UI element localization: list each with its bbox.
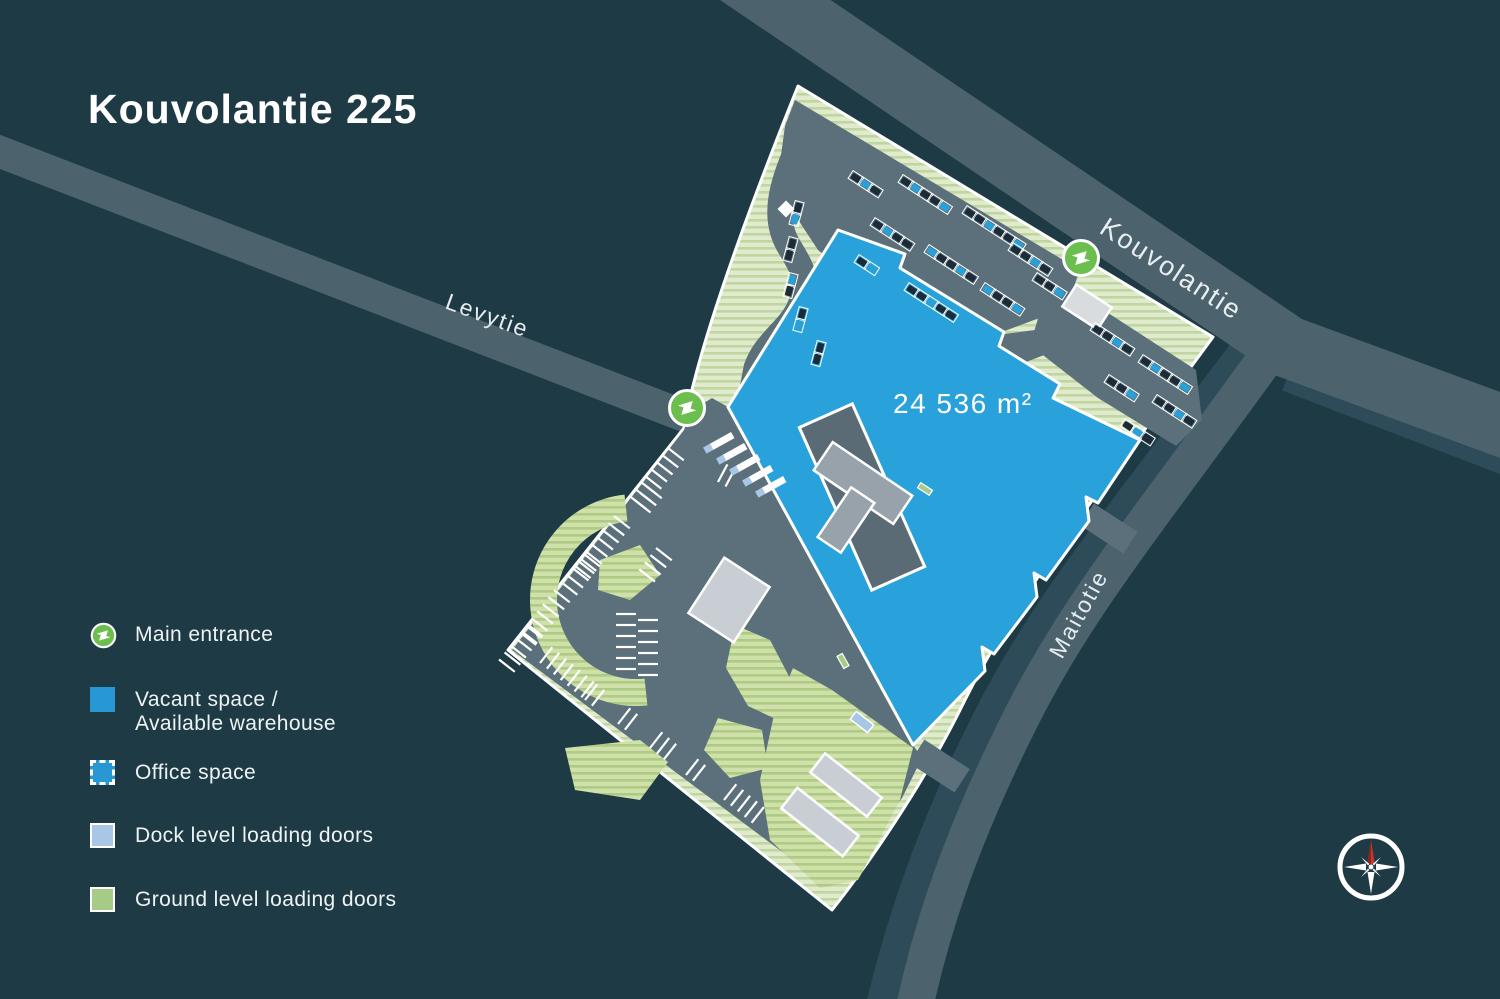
legend-item-office-space: Office space bbox=[90, 760, 396, 785]
main-entrance-icon bbox=[90, 622, 117, 649]
vacant-space-swatch bbox=[90, 687, 115, 712]
dock-doors-swatch bbox=[90, 823, 115, 848]
legend-label: Main entrance bbox=[135, 622, 273, 647]
legend-label: Dock level loading doors bbox=[135, 823, 373, 848]
legend-item-dock-doors: Dock level loading doors bbox=[90, 823, 396, 848]
legend-item-main-entrance: Main entrance bbox=[90, 622, 396, 649]
ground-doors-swatch bbox=[90, 887, 115, 912]
warehouse-area-label: 24 536 m² bbox=[893, 388, 1033, 419]
legend-label: Vacant space / bbox=[135, 688, 278, 711]
office-space-swatch bbox=[90, 760, 115, 785]
legend-item-vacant-space: Vacant space / Available warehouse bbox=[90, 687, 396, 736]
site-plan-page: Kouvolantie Levytie Maitotie 24 536 m² K… bbox=[0, 0, 1500, 999]
legend-label: Office space bbox=[135, 760, 256, 785]
page-title: Kouvolantie 225 bbox=[88, 86, 417, 133]
main-entrance-marker bbox=[670, 391, 705, 426]
main-entrance-marker bbox=[1064, 241, 1099, 276]
legend: Main entrance Vacant space / Available w… bbox=[90, 622, 396, 950]
legend-label-line2: Available warehouse bbox=[135, 712, 336, 735]
legend-label: Ground level loading doors bbox=[135, 887, 396, 912]
legend-item-ground-doors: Ground level loading doors bbox=[90, 887, 396, 912]
compass-icon bbox=[1340, 836, 1402, 898]
